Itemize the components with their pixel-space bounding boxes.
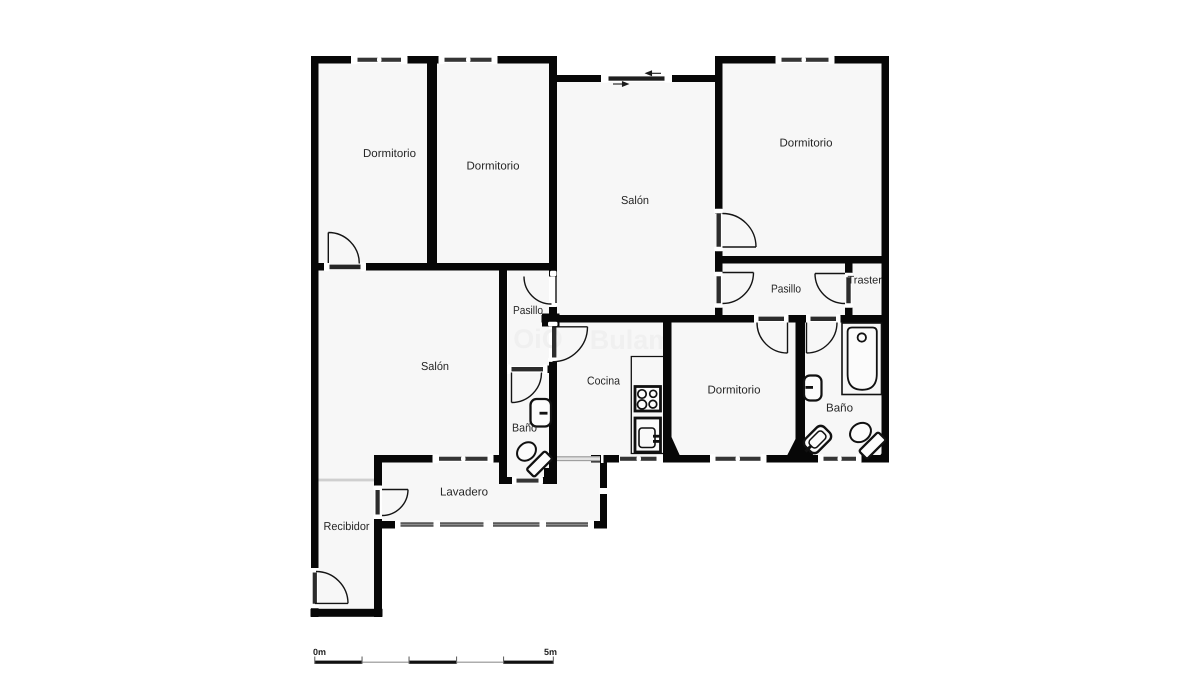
svg-text:Cocina: Cocina: [587, 376, 621, 388]
svg-text:Salón: Salón: [621, 195, 649, 207]
svg-text:Bulam: Bulam: [590, 325, 673, 355]
svg-text:Dormitorio: Dormitorio: [363, 148, 416, 160]
svg-text:Baño: Baño: [512, 422, 537, 434]
svg-text:Dormitorio: Dormitorio: [780, 138, 833, 150]
svg-text:Pasillo: Pasillo: [771, 283, 801, 295]
svg-text:0m: 0m: [313, 647, 326, 657]
svg-text:Salón: Salón: [421, 361, 449, 373]
svg-text:Pasillo: Pasillo: [513, 305, 543, 317]
svg-text:Dormitorio: Dormitorio: [467, 161, 520, 173]
svg-text:Lavadero: Lavadero: [440, 487, 488, 499]
svg-text:Recibidor: Recibidor: [324, 521, 370, 533]
svg-text:Baño: Baño: [826, 403, 853, 415]
svg-text:Dormitorio: Dormitorio: [708, 385, 761, 397]
svg-text:5m: 5m: [544, 647, 557, 657]
